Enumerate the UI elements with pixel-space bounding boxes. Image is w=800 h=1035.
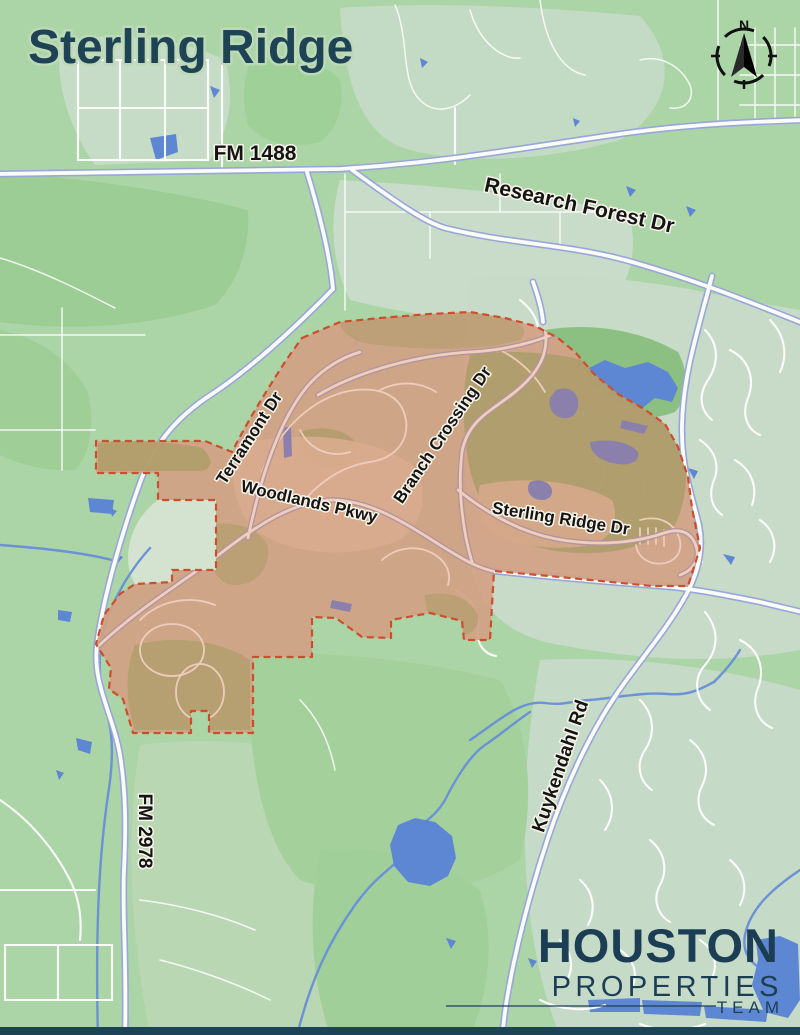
- logo-team: TEAM: [717, 998, 784, 1017]
- neighborhood-map-page: FM 1488 Research Forest Dr Terramont Dr …: [0, 0, 800, 1035]
- road-label-fm-2978: FM 2978: [134, 794, 155, 869]
- logo-houston: HOUSTON: [538, 919, 779, 972]
- compass-north-label: N: [739, 17, 749, 33]
- map-title: Sterling Ridge: [28, 21, 353, 74]
- road-label-fm-1488: FM 1488: [214, 142, 297, 165]
- footer-bar: [0, 1027, 800, 1035]
- neighborhood-map: FM 1488 Research Forest Dr Terramont Dr …: [0, 0, 800, 1035]
